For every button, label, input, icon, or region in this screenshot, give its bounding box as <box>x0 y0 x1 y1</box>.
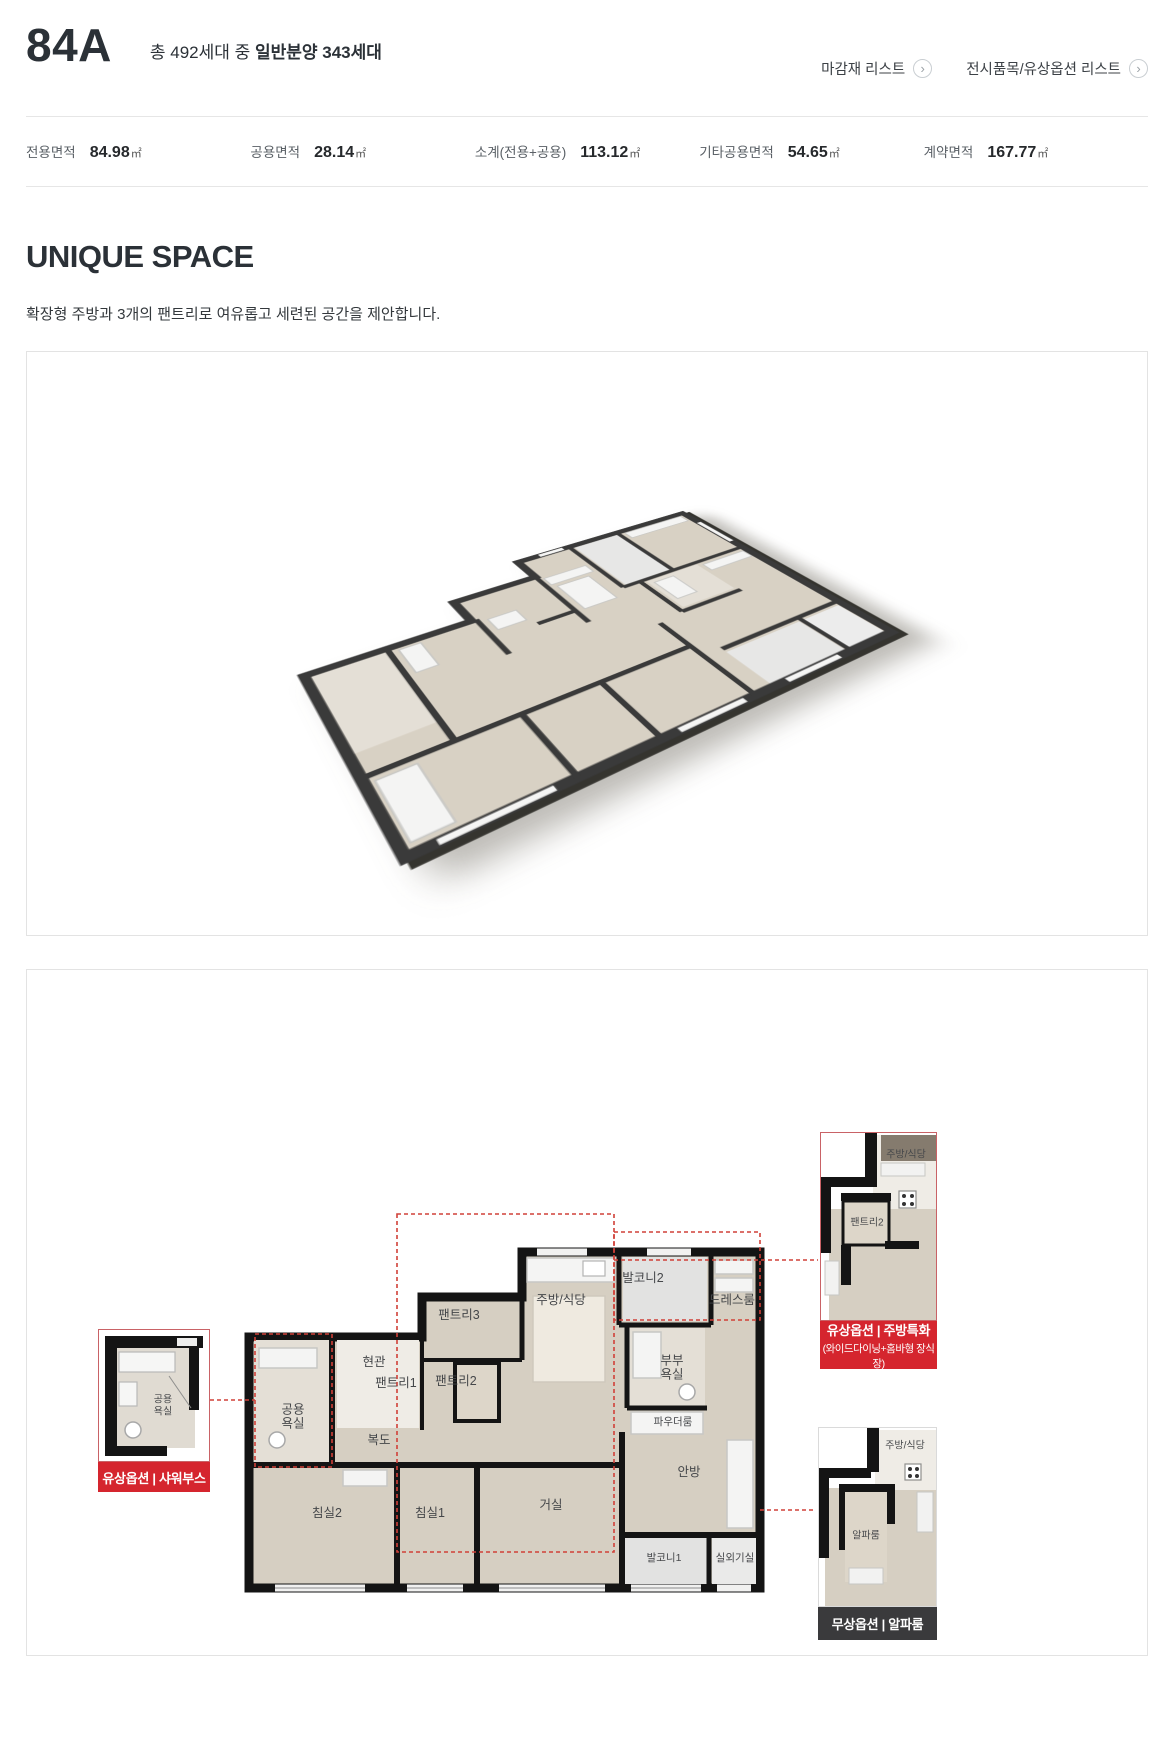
unit-summary-prefix: 총 492세대 중 <box>150 43 255 62</box>
callout-shower-booth: 공용욕실 유상옵션 | 샤워부스 <box>98 1329 210 1492</box>
callout-shower-badge: 유상옵션 | 샤워부스 <box>98 1462 210 1492</box>
callout-alpha-room: 알파룸 주방/식당 무상옵션 | 알파룸 <box>818 1427 937 1640</box>
spec-value: 28.14㎡ <box>314 144 366 162</box>
callout-alpha-kitchen-label: 주방/식당 <box>885 1440 925 1452</box>
area-spec-bar: 전용면적 84.98㎡ 공용면적 28.14㎡ 소계(전용+공용) 113.12… <box>26 116 1148 187</box>
chevron-circle-icon <box>913 59 932 78</box>
spec-value: 54.65㎡ <box>788 144 840 162</box>
callout-alpha-plan: 알파룸 주방/식당 <box>818 1427 937 1607</box>
finish-material-list-label: 마감재 리스트 <box>821 58 905 79</box>
room-label-pantry3: 팬트리3 <box>438 1308 479 1322</box>
room-label-balcony1: 발코니1 <box>647 1552 682 1564</box>
room-label-pantry2: 팬트리2 <box>435 1374 476 1388</box>
room-label-entrance: 현관 <box>362 1355 385 1369</box>
spec-exclusive-area: 전용면적 84.98㎡ <box>26 141 250 162</box>
spec-contract-area: 계약면적 167.77㎡ <box>924 141 1148 162</box>
chevron-circle-icon <box>1129 59 1148 78</box>
unit-type-title: 84A <box>26 22 112 68</box>
floorplan-2d-wrap: 팬트리3 주방/식당 발코니2 드레스룸 현관 팬트리1 팬트리2 부부욕실 파… <box>27 970 1147 1655</box>
room-label-kitchen: 주방/식당 <box>536 1293 585 1307</box>
room-label-ac-room: 실외기실 <box>716 1552 755 1564</box>
callout-kitchen-special: 팬트리2 주방/식당 유상옵션 | 주방특화 (와이드다이닝+홈바형 장식장) <box>820 1132 937 1369</box>
callout-alpha-graphic <box>819 1428 936 1606</box>
callout-alpha-room-label: 알파룸 <box>852 1530 880 1542</box>
floorplan-3d-stage <box>207 352 967 912</box>
callout-shower-room-label: 공용욕실 <box>152 1395 175 1418</box>
room-label-bedroom2: 침실2 <box>312 1506 342 1520</box>
finish-material-list-link[interactable]: 마감재 리스트 <box>821 58 932 79</box>
header-links: 마감재 리스트 전시품목/유상옵션 리스트 <box>821 58 1148 79</box>
floorplan-page: 84A 총 492세대 중 일반분양 343세대 마감재 리스트 전시품목/유상… <box>0 0 1174 1656</box>
display-item-option-list-link[interactable]: 전시품목/유상옵션 리스트 <box>966 58 1148 79</box>
section-description: 확장형 주방과 3개의 팬트리로 여유롭고 세련된 공간을 제안합니다. <box>26 303 1148 324</box>
floorplan-2d-panel: 팬트리3 주방/식당 발코니2 드레스룸 현관 팬트리1 팬트리2 부부욕실 파… <box>26 969 1148 1656</box>
room-label-master-room: 안방 <box>677 1465 700 1479</box>
room-label-dressroom: 드레스룸 <box>709 1293 755 1307</box>
section-title: UNIQUE SPACE <box>26 239 1148 275</box>
spec-label: 공용면적 <box>250 141 300 161</box>
room-label-powder-room: 파우더룸 <box>654 1416 693 1428</box>
spec-label: 전용면적 <box>26 141 76 161</box>
callout-shower-plan: 공용욕실 <box>98 1329 210 1462</box>
header: 84A 총 492세대 중 일반분양 343세대 마감재 리스트 전시품목/유상… <box>26 0 1148 116</box>
spec-value: 113.12㎡ <box>580 144 640 162</box>
header-title-group: 84A 총 492세대 중 일반분양 343세대 <box>26 22 382 68</box>
room-label-living: 거실 <box>539 1498 562 1512</box>
room-label-balcony2: 발코니2 <box>622 1271 663 1285</box>
callout-kitchen-pantry-label: 팬트리2 <box>850 1217 883 1229</box>
unit-summary: 총 492세대 중 일반분양 343세대 <box>150 38 382 68</box>
spec-label: 계약면적 <box>924 141 974 161</box>
room-label-bedroom1: 침실1 <box>415 1506 445 1520</box>
spec-value: 84.98㎡ <box>90 144 142 162</box>
callout-kitchen-room-label: 주방/식당 <box>886 1149 926 1161</box>
spec-label: 소계(전용+공용) <box>475 141 566 161</box>
floorplan-3d-panel <box>26 351 1148 936</box>
spec-other-common-area: 기타공용면적 54.65㎡ <box>699 141 923 162</box>
room-label-common-bath: 공용욕실 <box>279 1403 308 1432</box>
spec-common-area: 공용면적 28.14㎡ <box>250 141 474 162</box>
callout-alpha-badge: 무상옵션 | 알파룸 <box>818 1607 937 1640</box>
spec-value: 167.77㎡ <box>987 144 1048 162</box>
room-label-hallway: 복도 <box>367 1433 390 1447</box>
spec-subtotal-area: 소계(전용+공용) 113.12㎡ <box>475 141 699 162</box>
floorplan-3d-graphic <box>265 508 909 875</box>
spec-label: 기타공용면적 <box>699 141 774 161</box>
unit-summary-bold: 일반분양 343세대 <box>255 43 382 62</box>
callout-kitchen-badge: 유상옵션 | 주방특화 (와이드다이닝+홈바형 장식장) <box>820 1321 937 1369</box>
callout-kitchen-plan: 팬트리2 주방/식당 <box>820 1132 937 1321</box>
floorplan-2d-graphic <box>27 970 1148 1655</box>
room-label-pantry1: 팬트리1 <box>375 1376 416 1390</box>
display-item-option-list-label: 전시품목/유상옵션 리스트 <box>966 58 1121 79</box>
room-label-master-bath: 부부욕실 <box>658 1354 687 1383</box>
